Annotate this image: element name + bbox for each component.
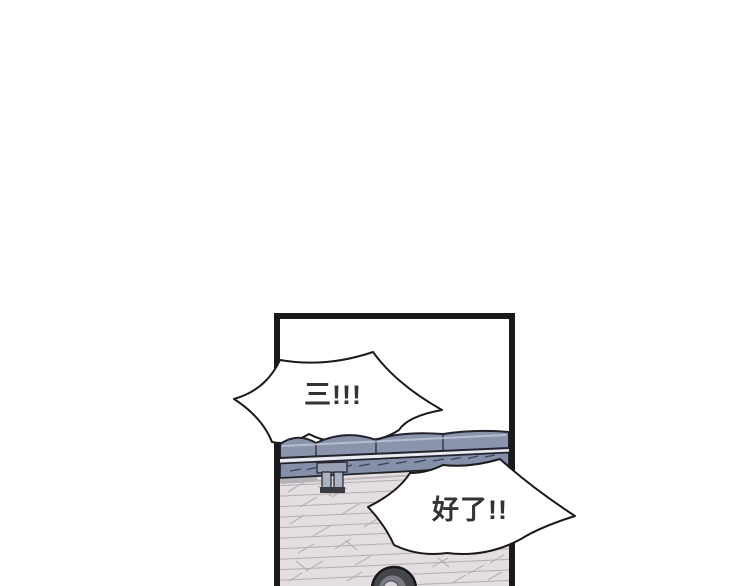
panel-border-top (274, 313, 515, 319)
bench-leg-foot (332, 487, 345, 493)
panel-border-left (274, 313, 280, 586)
bench-leg (322, 472, 331, 489)
comic-panel-art: 三!!! 好了!! (0, 0, 750, 586)
bench-leg-foot (320, 487, 333, 493)
comic-page: 三!!! 好了!! (0, 0, 750, 586)
bench-leg-bracket (317, 462, 347, 473)
shout-bubble-right-text: 好了!! (431, 495, 508, 525)
shout-bubble-left-text: 三!!! (304, 380, 362, 410)
bench-leg (334, 472, 343, 489)
